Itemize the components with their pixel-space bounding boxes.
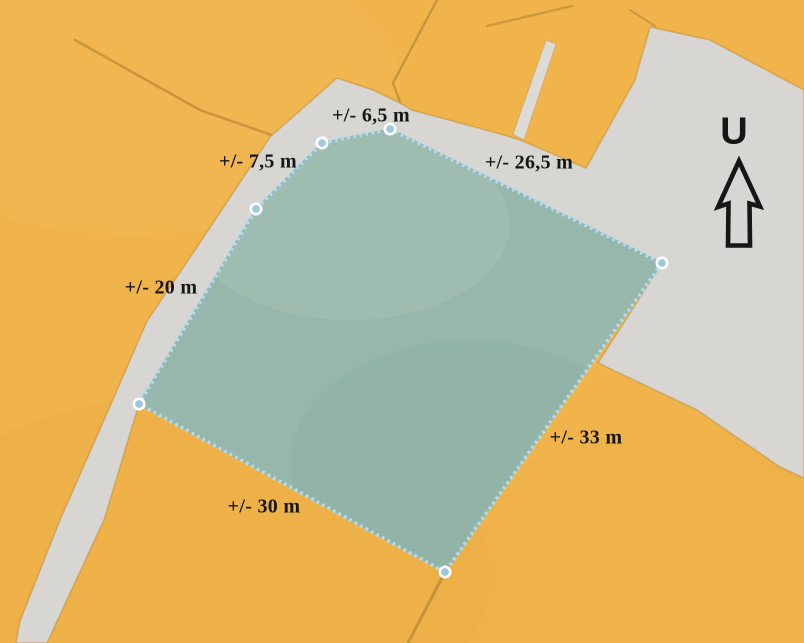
measurement-label-bottom-edge: +/- 30 m	[228, 496, 301, 519]
vertex-handle[interactable]	[657, 258, 667, 268]
vertex-handle[interactable]	[134, 399, 144, 409]
measurement-label-top-edge: +/- 6,5 m	[332, 105, 410, 128]
cadastral-map	[0, 0, 804, 643]
measurement-label-upper-right-edge: +/- 26,5 m	[485, 152, 573, 175]
vertex-handle[interactable]	[251, 204, 261, 214]
measurement-label-left-edge: +/- 20 m	[125, 277, 198, 300]
measurement-label-right-edge: +/- 33 m	[550, 427, 623, 450]
map-canvas: +/- 6,5 m +/- 7,5 m +/- 26,5 m +/- 20 m …	[0, 0, 804, 643]
vertex-handle[interactable]	[440, 567, 450, 577]
measurement-label-upper-left-edge: +/- 7,5 m	[219, 151, 297, 174]
vertex-handle[interactable]	[317, 138, 327, 148]
north-label: U	[720, 111, 747, 154]
